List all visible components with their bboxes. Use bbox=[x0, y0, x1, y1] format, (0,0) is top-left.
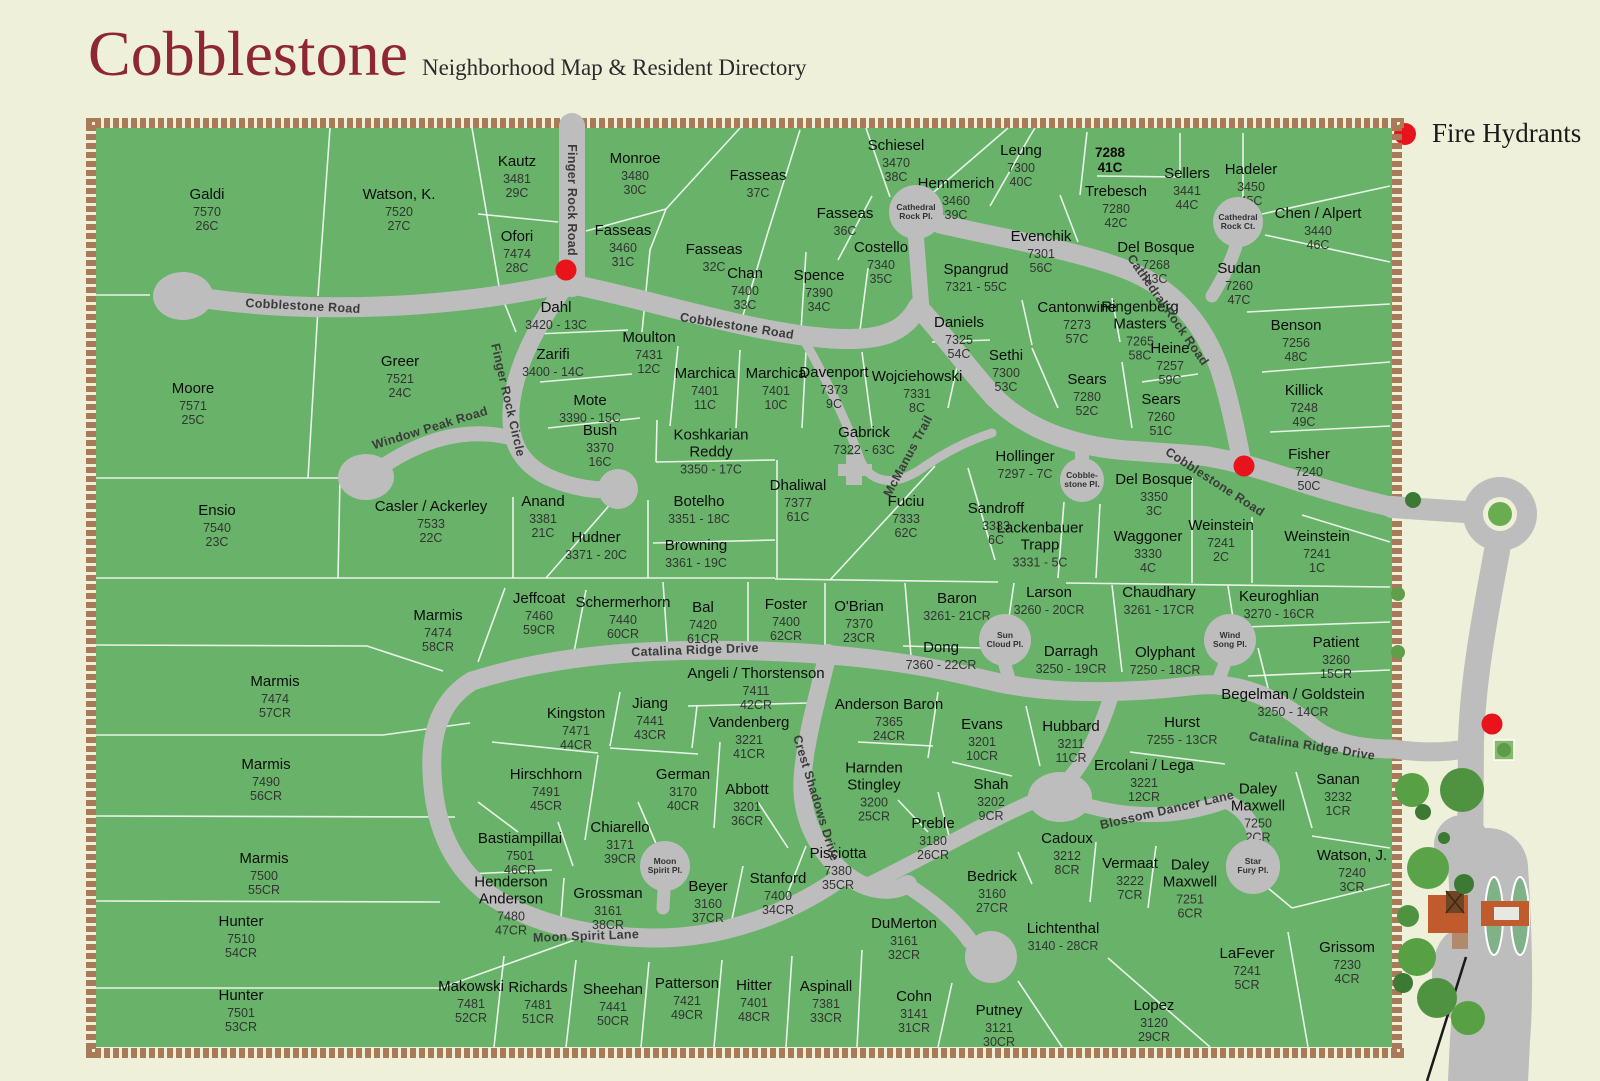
tree-icon bbox=[1417, 978, 1457, 1018]
roads-and-parcels-layer bbox=[0, 0, 1600, 1081]
tree-icon bbox=[1451, 1001, 1485, 1035]
neighborhood-map-page: Cobblestone Neighborhood Map & Resident … bbox=[0, 0, 1600, 1081]
tree-icon bbox=[1438, 832, 1450, 844]
tree-icon bbox=[1391, 587, 1405, 601]
tree-icon bbox=[1393, 973, 1413, 993]
tree-icon bbox=[1397, 905, 1419, 927]
tree-icon bbox=[1395, 773, 1429, 807]
tree-icon bbox=[1415, 804, 1431, 820]
tree-icon bbox=[1405, 492, 1421, 508]
tree-icon bbox=[1454, 874, 1474, 894]
fire-hydrant-dot bbox=[556, 260, 577, 281]
fire-hydrant-dot bbox=[1234, 456, 1255, 477]
fire-hydrant-dot bbox=[1482, 714, 1503, 735]
tree-icon bbox=[1440, 768, 1484, 812]
tree-icon bbox=[1391, 645, 1405, 659]
tree-icon bbox=[1407, 847, 1449, 889]
tree-icon bbox=[1398, 938, 1436, 976]
